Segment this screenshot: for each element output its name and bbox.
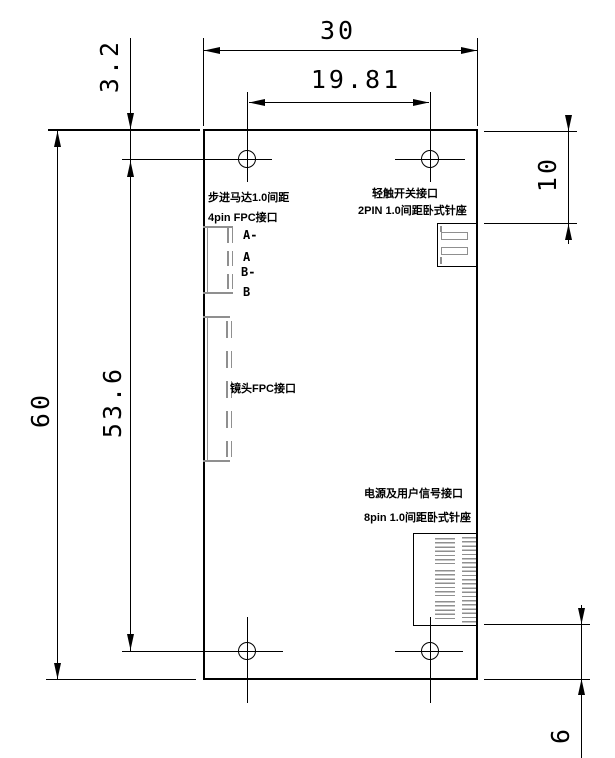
dimension-text-board-height: 60 bbox=[28, 380, 54, 440]
dimension-text-board-width: 30 bbox=[308, 18, 368, 44]
crosshair-bottom-right-horizontal bbox=[395, 651, 463, 653]
arrow-hole-offset-top bbox=[127, 113, 134, 129]
arrow-switch-bottom bbox=[565, 224, 572, 240]
lens-connector-left-edge bbox=[207, 316, 209, 462]
power-connector-pins-left-group2 bbox=[435, 570, 455, 596]
switch-connector-label-line2: 2PIN 1.0间距卧式针座 bbox=[358, 205, 467, 218]
dimension-text-hole-offset: 3.2 bbox=[97, 31, 123, 101]
extension-line-width-left bbox=[203, 38, 205, 126]
crosshair-top-right-horizontal bbox=[395, 159, 465, 161]
switch-connector-inner-tick-bottom bbox=[440, 257, 442, 264]
arrow-height-bottom bbox=[54, 663, 61, 679]
switch-connector-slot-2 bbox=[441, 247, 468, 255]
extension-line-height-bottom bbox=[46, 679, 196, 681]
arrow-hole-span-left bbox=[249, 99, 265, 106]
power-connector-label-line2: 8pin 1.0间距卧式针座 bbox=[364, 512, 471, 525]
stepper-connector-left-edge bbox=[207, 226, 209, 294]
crosshair-bottom-left-vertical bbox=[247, 617, 249, 703]
arrow-power-bottom bbox=[578, 679, 585, 695]
power-connector-pins-left-group3 bbox=[435, 601, 455, 621]
crosshair-top-left-horizontal bbox=[122, 159, 272, 161]
stepper-connector-pin-row-outer bbox=[227, 228, 229, 293]
extension-line-switch-bottom bbox=[484, 223, 577, 225]
dimension-line-switch-offset bbox=[568, 118, 570, 244]
extension-line-width-right bbox=[477, 38, 479, 126]
arrow-switch-top bbox=[565, 115, 572, 131]
switch-connector-inner-tick-top bbox=[440, 226, 442, 232]
pcb-dimension-drawing: 30 19.81 3.2 53.6 60 10 6 A- A B- B 步进马达… bbox=[0, 0, 615, 758]
arrow-width-right bbox=[461, 47, 477, 54]
arrow-hole-offset-bottom bbox=[127, 161, 134, 177]
dimension-line-hole-span bbox=[249, 102, 429, 104]
power-connector-label-line1: 电源及用户信号接口 bbox=[364, 488, 463, 501]
arrow-height-top bbox=[54, 131, 61, 147]
crosshair-top-right-vertical bbox=[430, 92, 432, 182]
extension-line-power-bottom bbox=[484, 679, 590, 681]
stepper-connector-label-line2: 4pin FPC接口 bbox=[208, 212, 278, 225]
extension-line-power-top bbox=[484, 624, 590, 626]
stepper-pin-label-b-minus: B- bbox=[241, 266, 255, 278]
stepper-pin-label-a: A bbox=[243, 251, 250, 263]
dimension-line-board-width bbox=[204, 50, 477, 52]
power-connector-pins-right bbox=[462, 537, 476, 623]
stepper-connector-label-line1: 步进马达1.0间距 bbox=[208, 192, 289, 205]
extension-line-switch-top bbox=[484, 131, 577, 133]
lens-connector-pin-row-outer bbox=[226, 321, 228, 457]
crosshair-top-left-vertical bbox=[247, 92, 249, 182]
switch-connector-label-line1: 轻触开关接口 bbox=[372, 188, 438, 201]
arrow-hole-span-v-bottom bbox=[127, 634, 134, 650]
dimension-line-board-height bbox=[57, 130, 59, 679]
dimension-text-switch-offset: 10 bbox=[535, 144, 561, 204]
crosshair-bottom-right-vertical bbox=[430, 617, 432, 703]
stepper-pin-label-a-minus: A- bbox=[243, 229, 257, 241]
arrow-width-left bbox=[204, 47, 220, 54]
arrow-power-top bbox=[578, 608, 585, 624]
crosshair-bottom-left-horizontal bbox=[122, 651, 283, 653]
stepper-pin-label-b: B bbox=[243, 286, 250, 298]
switch-connector-body bbox=[437, 223, 478, 267]
switch-connector-slot-1 bbox=[441, 232, 468, 240]
stepper-connector-pin-row-inner bbox=[232, 228, 234, 293]
dimension-text-hole-span-v: 53.6 bbox=[100, 352, 126, 452]
arrow-hole-span-right bbox=[413, 99, 429, 106]
power-connector-pins-left-group1 bbox=[435, 538, 455, 564]
dimension-text-hole-span: 19.81 bbox=[281, 67, 431, 93]
dimension-text-power-offset: 6 bbox=[548, 715, 574, 755]
extension-line-height-top bbox=[48, 129, 200, 131]
lens-connector-label: 镜头FPC接口 bbox=[230, 383, 296, 396]
